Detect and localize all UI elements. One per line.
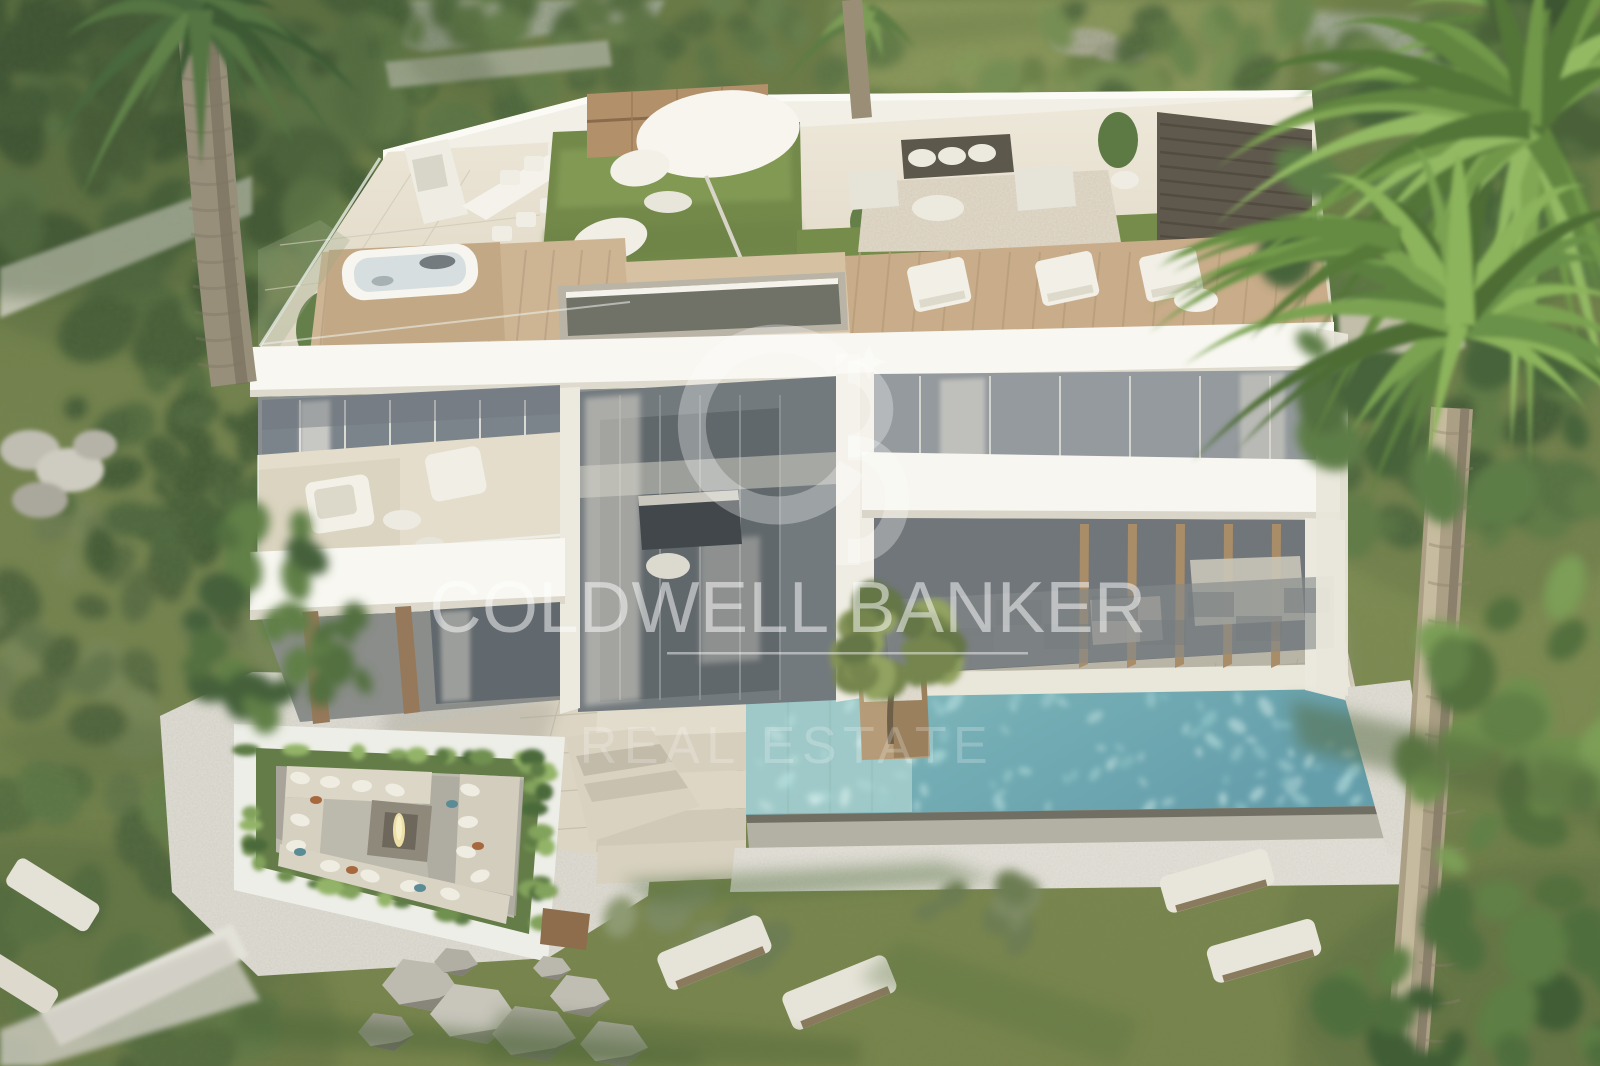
svg-text:REAL ESTATE: REAL ESTATE: [580, 717, 994, 775]
svg-text:COLDWELL BANKER: COLDWELL BANKER: [429, 568, 1146, 648]
